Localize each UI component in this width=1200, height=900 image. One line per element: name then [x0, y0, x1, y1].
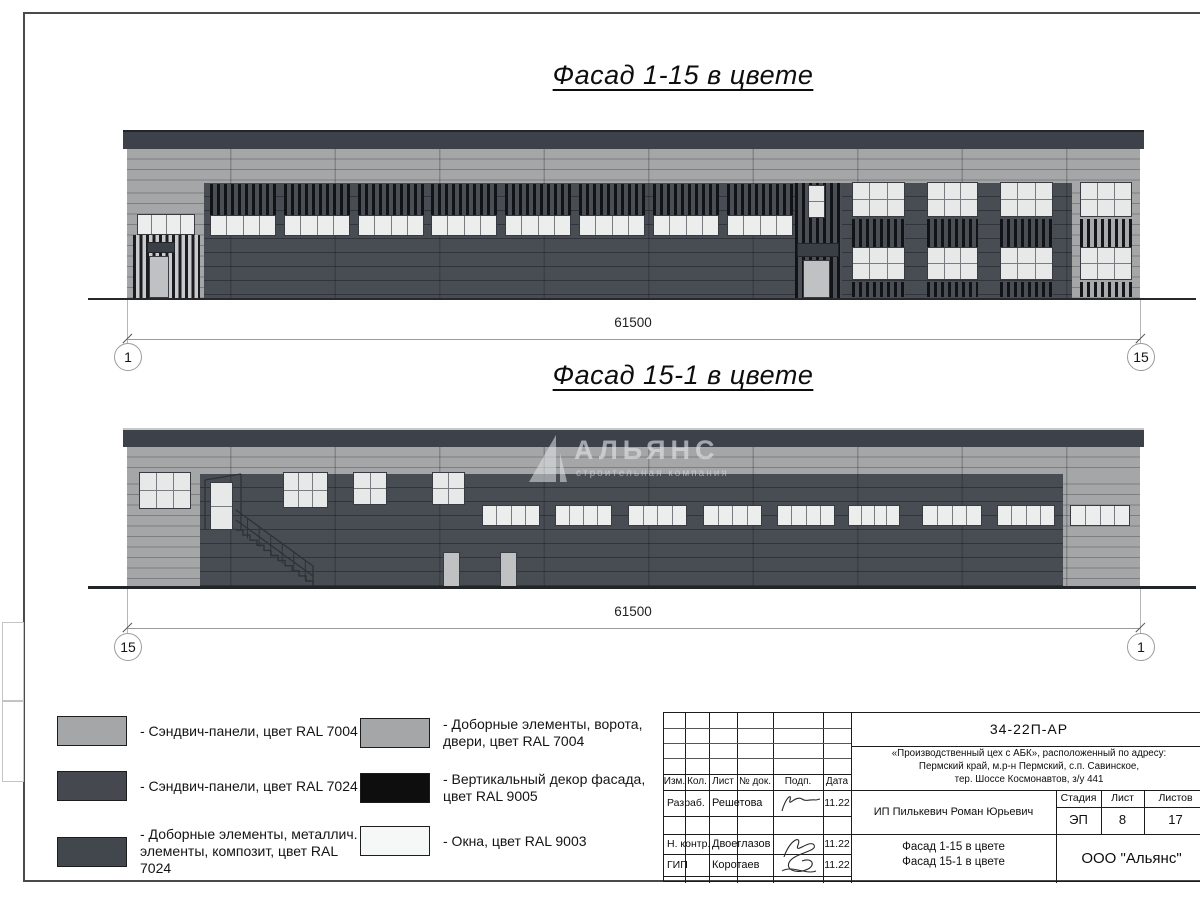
- window-pane: [584, 506, 597, 525]
- window-pane: [138, 215, 151, 234]
- window-pane: [1036, 248, 1052, 263]
- window-pane: [1098, 264, 1114, 279]
- window-pane: [1081, 264, 1097, 279]
- window-pane: [888, 183, 904, 199]
- window-pane: [1081, 200, 1097, 216]
- window-pane: [777, 216, 792, 235]
- frame-top: [23, 12, 1200, 14]
- client-name: ИП Пилькевич Роман Юрьевич: [851, 790, 1056, 834]
- window-pane: [285, 216, 300, 235]
- dimension-value: 61500: [573, 315, 693, 330]
- window-pane: [140, 473, 156, 490]
- stripe-decor: [358, 184, 424, 215]
- window-pane: [318, 216, 333, 235]
- window-pane: [887, 506, 899, 525]
- window-pane: [570, 506, 583, 525]
- stripe-decor: [852, 282, 905, 297]
- window-pane: [928, 264, 944, 279]
- staff-name: Коротаев: [712, 854, 776, 876]
- abk-lower-window: [927, 247, 978, 280]
- staff-role: Разраб.: [667, 790, 711, 816]
- strip-window: [431, 215, 497, 236]
- window-pane: [152, 215, 165, 234]
- strip-window: [703, 505, 762, 526]
- window-pane: [1098, 183, 1114, 199]
- window-pane: [998, 506, 1011, 525]
- window-pane: [433, 489, 448, 504]
- strip-window: [777, 505, 835, 526]
- staff-role: Н. контр.: [667, 834, 711, 854]
- window-pane: [870, 183, 886, 199]
- strip-window: [848, 505, 900, 526]
- abk-sign: [797, 243, 839, 257]
- stage-label: Стадия: [1056, 790, 1101, 807]
- stripe-decor: [727, 184, 793, 215]
- window-pane: [703, 216, 718, 235]
- window-pane: [1115, 200, 1131, 216]
- window-pane: [654, 216, 669, 235]
- window-pane: [1036, 200, 1052, 216]
- sheet-title-line2: Фасад 15-1 в цвете: [851, 855, 1056, 870]
- col-list: Лист: [709, 774, 737, 790]
- window-pane: [371, 473, 387, 488]
- stripe-decor: [579, 184, 645, 215]
- legend-swatch: [360, 826, 430, 856]
- window-pane: [174, 491, 190, 508]
- window-pane: [733, 506, 747, 525]
- window-pane: [888, 264, 904, 279]
- window-pane: [354, 489, 370, 504]
- window-pane: [644, 506, 658, 525]
- axis-marker: 1: [114, 343, 142, 371]
- window-pane: [301, 216, 316, 235]
- abk-upper-window: [852, 182, 905, 217]
- window-pane: [167, 215, 180, 234]
- watermark-sail-icon: [526, 431, 570, 485]
- stripe-decor: [431, 184, 497, 215]
- abk-lower-window: [1080, 247, 1132, 280]
- window-pane: [1071, 506, 1085, 525]
- window-pane: [849, 506, 861, 525]
- stripe-decor: [210, 184, 276, 215]
- exit-door: [443, 552, 460, 587]
- window-pane: [512, 506, 525, 525]
- entrance-sign: [147, 242, 175, 253]
- col-izm: Изм.: [664, 774, 685, 790]
- strip-window: [628, 505, 687, 526]
- staff-name: Решетова: [712, 790, 774, 816]
- window-pane: [744, 216, 759, 235]
- window-pane: [244, 216, 259, 235]
- staff-date: 11.22: [823, 854, 851, 876]
- window-pane: [888, 248, 904, 263]
- title-block-line: [664, 743, 851, 744]
- window-pane: [870, 264, 886, 279]
- window: [139, 472, 191, 509]
- window-pane: [1001, 200, 1017, 216]
- window-pane: [748, 506, 762, 525]
- ground-line: [88, 586, 1196, 589]
- legend-swatch: [57, 837, 127, 867]
- window-pane: [596, 216, 611, 235]
- abk-upper-window: [927, 182, 978, 217]
- watermark-subtitle: строительная компания: [576, 468, 729, 479]
- axis-marker: 15: [114, 633, 142, 661]
- window-pane: [1001, 264, 1017, 279]
- window-pane: [1081, 183, 1097, 199]
- window-pane: [807, 506, 820, 525]
- staff-name: Двоеглазов: [712, 834, 776, 854]
- window-pane: [375, 216, 390, 235]
- abk-upper-window: [1000, 182, 1053, 217]
- window-pane: [945, 183, 961, 199]
- strip-window: [1070, 505, 1130, 526]
- company-name: ООО "Альянс": [1056, 834, 1200, 883]
- window-pane: [449, 489, 464, 504]
- window-pane: [778, 506, 791, 525]
- stripe-decor: [505, 184, 571, 215]
- window-pane: [140, 491, 156, 508]
- window-pane: [761, 216, 776, 235]
- window-pane: [433, 473, 448, 488]
- exterior-staircase: [203, 468, 323, 589]
- window-pane: [157, 491, 173, 508]
- window-pane: [945, 200, 961, 216]
- window-pane: [1036, 183, 1052, 199]
- window-pane: [1012, 506, 1025, 525]
- window-pane: [945, 264, 961, 279]
- window-pane: [1115, 506, 1129, 525]
- stripe-decor: [1000, 219, 1053, 247]
- legend-swatch: [57, 771, 127, 801]
- window-pane: [670, 216, 685, 235]
- window-pane: [1098, 248, 1114, 263]
- window-pane: [945, 248, 961, 263]
- facade-1-title: Фасад 1-15 в цвете: [423, 60, 943, 91]
- watermark-name: АЛЬЯНС: [574, 435, 720, 466]
- col-kol: Кол.: [685, 774, 709, 790]
- window-pane: [853, 264, 869, 279]
- window-pane: [359, 216, 374, 235]
- stripe-decor: [1080, 219, 1132, 247]
- window-pane: [539, 216, 554, 235]
- window-pane: [1115, 183, 1131, 199]
- window-pane: [658, 506, 672, 525]
- staff-date: 11.22: [823, 790, 851, 816]
- window-pane: [821, 506, 834, 525]
- strip-window: [922, 505, 982, 526]
- window-pane: [1101, 506, 1115, 525]
- window-pane: [181, 215, 194, 234]
- window-pane: [465, 216, 480, 235]
- strip-window: [210, 215, 276, 236]
- exit-door: [500, 552, 517, 587]
- window-pane: [728, 216, 743, 235]
- window-pane: [211, 216, 226, 235]
- window-pane: [392, 216, 407, 235]
- window-pane: [870, 248, 886, 263]
- stripe-decor: [653, 184, 719, 215]
- window-pane: [629, 506, 643, 525]
- strip-window: [555, 505, 612, 526]
- drawing-sheet: Фасад 1-15 в цвете Фасад 15-1 в цвете АЛ…: [0, 0, 1200, 900]
- window-pane: [875, 506, 887, 525]
- project-line3: тер. Шоссе Космонавтов, з/у 441: [851, 773, 1200, 786]
- window-pane: [961, 264, 977, 279]
- window-pane: [598, 506, 611, 525]
- legend-item: - Окна, цвет RAL 9003: [360, 826, 661, 856]
- window-pane: [1036, 264, 1052, 279]
- staff-date: 11.22: [823, 834, 851, 854]
- title-block-line: [664, 758, 851, 759]
- legend-label: - Доборные элементы, ворота, двери, цвет…: [443, 716, 661, 750]
- window-pane: [1027, 506, 1040, 525]
- window-pane: [1001, 248, 1017, 263]
- dimension-value: 61500: [573, 604, 693, 619]
- axis-marker: 1: [1127, 633, 1155, 661]
- window-pane: [853, 200, 869, 216]
- sheets-value: 17: [1144, 807, 1200, 834]
- legend-swatch: [360, 718, 430, 748]
- title-block-line: [664, 728, 851, 729]
- signature: [776, 791, 822, 817]
- window-pane: [953, 506, 967, 525]
- window-pane: [719, 506, 733, 525]
- strip-window: [358, 215, 424, 236]
- stripe-decor: [927, 282, 978, 297]
- stripe-decor: [284, 184, 350, 215]
- window-pane: [1041, 506, 1054, 525]
- project-line1: «Производственный цех с АБК», расположен…: [851, 747, 1200, 761]
- window-pane: [938, 506, 952, 525]
- window-pane: [481, 216, 496, 235]
- doc-code: 34-22П-АР: [851, 713, 1200, 746]
- facade-2-title: Фасад 15-1 в цвете: [423, 360, 943, 391]
- window-pane: [1115, 248, 1131, 263]
- strip-window: [482, 505, 540, 526]
- col-ndok: № док.: [737, 774, 773, 790]
- project-line2: Пермский край, м.р-н Пермский, с.п. Сави…: [851, 760, 1200, 773]
- strip-window: [997, 505, 1055, 526]
- window-pane: [1115, 264, 1131, 279]
- title-block: Изм. Кол. Лист № док. Подп. Дата Разраб.…: [663, 712, 1200, 882]
- window-pane: [853, 183, 869, 199]
- window-pane: [961, 183, 977, 199]
- title-block-line: [664, 876, 851, 877]
- window-pane: [673, 506, 687, 525]
- staircase-icon: [203, 468, 323, 589]
- window-pane: [371, 489, 387, 504]
- window-pane: [923, 506, 937, 525]
- sheet-label: Лист: [1101, 790, 1144, 807]
- margin-box: [2, 622, 24, 702]
- margin-box: [2, 700, 24, 782]
- window-pane: [1081, 248, 1097, 263]
- legend-item: - Сэндвич-панели, цвет RAL 7004: [57, 716, 358, 746]
- sheet-value: 8: [1101, 807, 1144, 834]
- window-pane: [408, 216, 423, 235]
- legend-label: - Сэндвич-панели, цвет RAL 7004: [140, 723, 358, 740]
- window-pane: [260, 216, 275, 235]
- legend-swatch: [57, 716, 127, 746]
- entrance-door: [149, 256, 169, 298]
- legend-item: - Сэндвич-панели, цвет RAL 7024: [57, 771, 358, 801]
- col-data: Дата: [823, 774, 851, 790]
- window-pane: [928, 183, 944, 199]
- window-pane: [497, 506, 510, 525]
- window-pane: [613, 216, 628, 235]
- window-pane: [227, 216, 242, 235]
- window-pane: [1086, 506, 1100, 525]
- window-pane: [888, 200, 904, 216]
- window-pane: [1018, 248, 1034, 263]
- title-block-line: [664, 816, 851, 817]
- sheets-label: Листов: [1144, 790, 1200, 807]
- dimension-line: [127, 628, 1140, 629]
- window-pane: [580, 216, 595, 235]
- window-pane: [862, 506, 874, 525]
- strip-window: [653, 215, 719, 236]
- sheet-title-line1: Фасад 1-15 в цвете: [851, 840, 1056, 855]
- window-pane: [809, 202, 824, 217]
- window-pane: [1001, 183, 1017, 199]
- dimension-line: [127, 339, 1140, 340]
- window-pane: [853, 248, 869, 263]
- strip-window: [137, 214, 195, 235]
- window-pane: [432, 216, 447, 235]
- window-pane: [687, 216, 702, 235]
- signature: [776, 831, 822, 879]
- ground-line: [88, 298, 1196, 301]
- window-pane: [967, 506, 981, 525]
- stripe-decor: [927, 219, 978, 247]
- legend-item: - Доборные элементы, металлич. элементы,…: [57, 826, 358, 877]
- legend-label: - Сэндвич-панели, цвет RAL 7024: [140, 778, 358, 795]
- legend-label: - Вертикальный декор фасада, цвет RAL 90…: [443, 771, 661, 805]
- legend-swatch: [360, 773, 430, 803]
- window-pane: [157, 473, 173, 490]
- abk-narrow-window: [808, 185, 825, 218]
- window-pane: [870, 200, 886, 216]
- window: [353, 472, 387, 505]
- stripe-decor: [852, 219, 905, 247]
- strip-window: [284, 215, 350, 236]
- strip-window: [727, 215, 793, 236]
- window-pane: [483, 506, 496, 525]
- legend-item: - Доборные элементы, ворота, двери, цвет…: [360, 716, 661, 750]
- abk-lower-window: [1000, 247, 1053, 280]
- window-pane: [522, 216, 537, 235]
- axis-marker: 15: [1127, 343, 1155, 371]
- strip-window: [505, 215, 571, 236]
- stage-value: ЭП: [1056, 807, 1101, 834]
- window-pane: [629, 216, 644, 235]
- legend-label: - Доборные элементы, металлич. элементы,…: [140, 826, 358, 877]
- window-pane: [174, 473, 190, 490]
- window-pane: [928, 200, 944, 216]
- abk-lower-window: [852, 247, 905, 280]
- window-pane: [1018, 200, 1034, 216]
- window-pane: [1018, 264, 1034, 279]
- window-pane: [448, 216, 463, 235]
- window: [432, 472, 465, 505]
- window-pane: [961, 248, 977, 263]
- watermark: АЛЬЯНС строительная компания: [518, 428, 778, 490]
- roof-band: [123, 130, 1144, 149]
- window-pane: [704, 506, 718, 525]
- window-pane: [792, 506, 805, 525]
- window-pane: [809, 186, 824, 201]
- abk-door: [803, 260, 830, 298]
- window-pane: [555, 216, 570, 235]
- legend-item: - Вертикальный декор фасада, цвет RAL 90…: [360, 771, 661, 805]
- abk-upper-window: [1080, 182, 1132, 217]
- strip-window: [579, 215, 645, 236]
- stripe-decor: [1080, 282, 1132, 297]
- window-pane: [334, 216, 349, 235]
- legend-label: - Окна, цвет RAL 9003: [443, 833, 661, 850]
- staff-role: ГИП: [667, 854, 711, 876]
- window-pane: [506, 216, 521, 235]
- window-pane: [928, 248, 944, 263]
- col-podp: Подп.: [773, 774, 823, 790]
- window-pane: [961, 200, 977, 216]
- facade-1-drawing: [127, 130, 1140, 301]
- window-pane: [556, 506, 569, 525]
- window-pane: [354, 473, 370, 488]
- window-pane: [1018, 183, 1034, 199]
- window-pane: [1098, 200, 1114, 216]
- stripe-decor: [1000, 282, 1053, 297]
- window-pane: [526, 506, 539, 525]
- window-pane: [449, 473, 464, 488]
